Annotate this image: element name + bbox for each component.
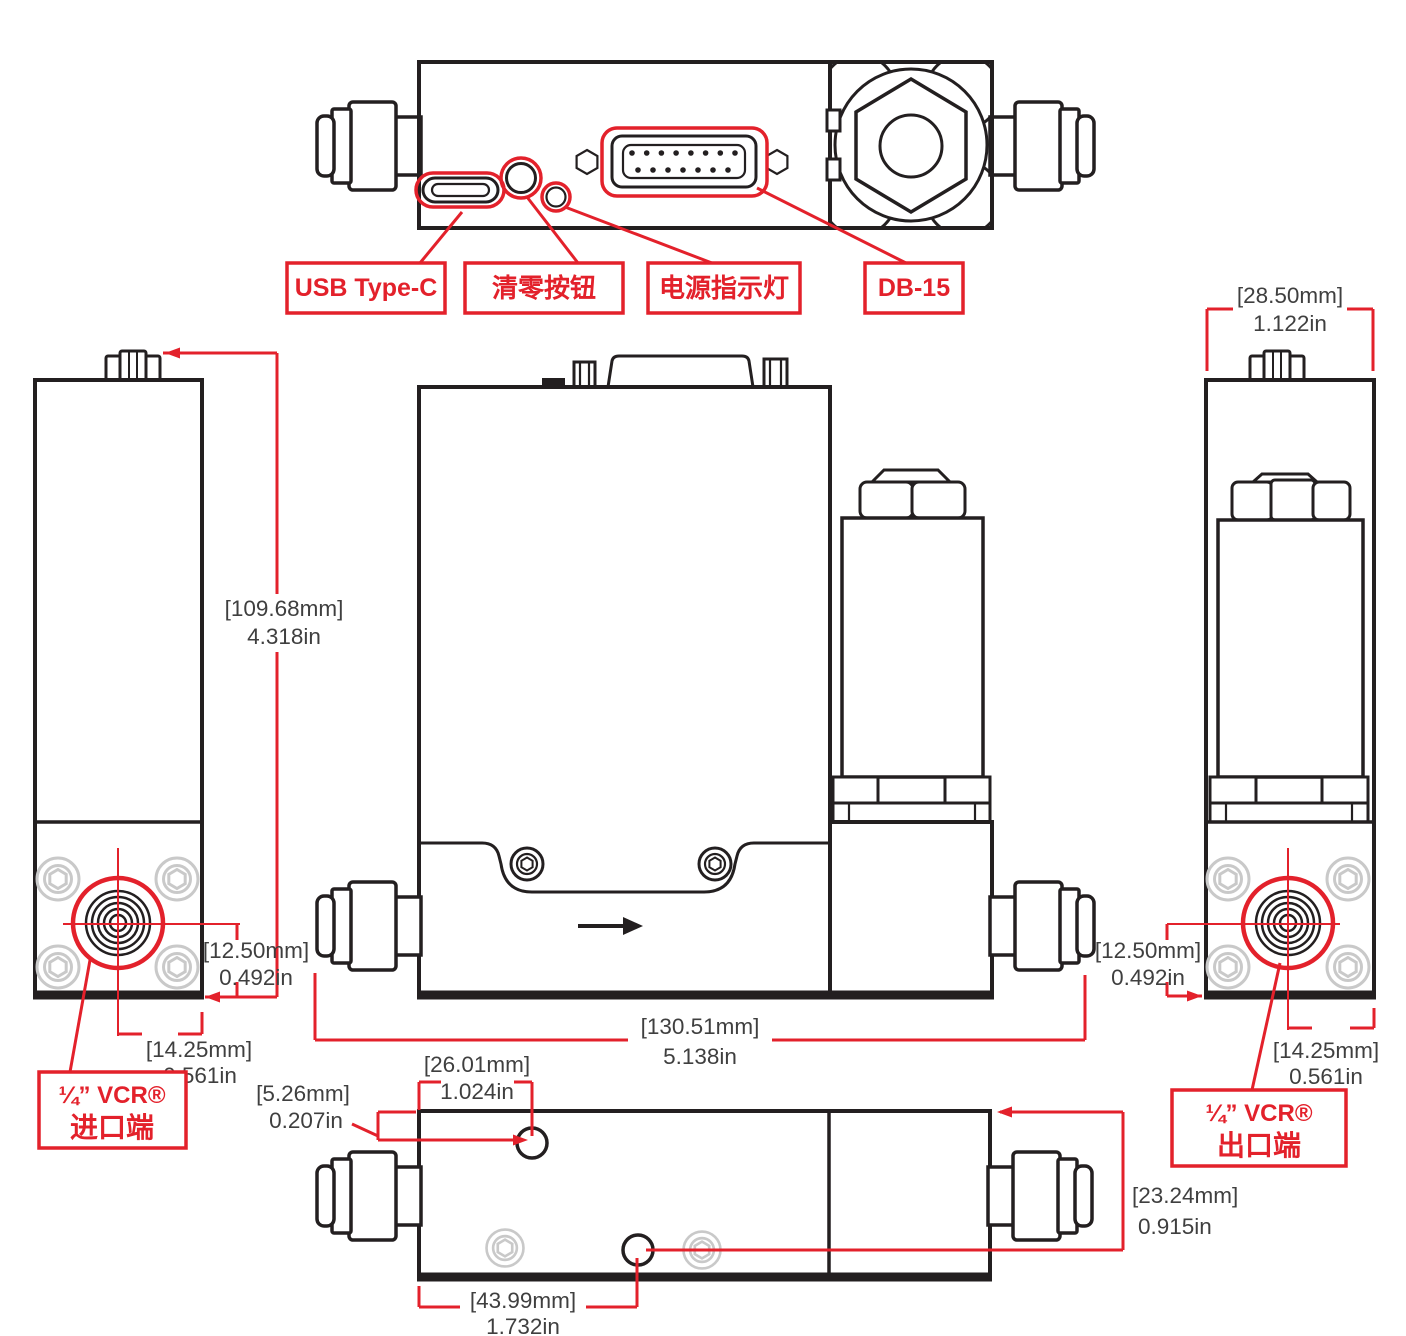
bottom-socket-1	[487, 1230, 524, 1267]
callout-zero-button-label: 清零按钮	[492, 273, 596, 303]
front-valve-body	[842, 518, 983, 777]
db15-pins	[629, 150, 738, 173]
front-view	[317, 356, 1094, 995]
left-bolt-1	[37, 858, 79, 900]
mfc-dimension-diagram: USB Type-C 清零按钮 电源指示灯 DB-15	[0, 0, 1406, 1336]
dim-inlet-height-in: 0.492in	[219, 965, 293, 990]
dim-overall-width-mm: [130.51mm]	[641, 1014, 760, 1039]
front-valve-nut-r	[912, 482, 965, 518]
bottom-outlet-fitting	[988, 1152, 1092, 1240]
front-screw-right	[699, 848, 731, 880]
callout-boxes: USB Type-C 清零按钮 电源指示灯 DB-15	[287, 263, 963, 313]
dim-body-depth-mm: [28.50mm]	[1237, 283, 1343, 308]
top-view	[317, 55, 1094, 235]
dim-hole2-x-in: 1.732in	[486, 1314, 560, 1336]
power-led	[547, 188, 566, 207]
right-valve-nut-r	[1313, 482, 1350, 520]
dim-hole2-y-mm: [23.24mm]	[1132, 1183, 1238, 1208]
db15-connector	[612, 136, 756, 187]
callout-db15-label: DB-15	[878, 274, 950, 302]
front-valve-base	[830, 822, 992, 995]
right-flange-tab-l	[1210, 777, 1256, 803]
right-bolt-1	[1207, 858, 1249, 900]
usb-c-slot	[432, 184, 489, 196]
outlet-callout-subtitle: 出口端	[1217, 1130, 1301, 1161]
zero-button	[507, 164, 536, 193]
dim-hole1-x-in: 1.024in	[440, 1079, 514, 1104]
right-valve-body	[1218, 520, 1363, 777]
inlet-callout-title: ¼” VCR®	[58, 1082, 165, 1109]
dim-hole2-x-mm: [43.99mm]	[470, 1288, 576, 1313]
bottom-inlet-fitting	[317, 1152, 421, 1240]
right-top-bolt	[1250, 351, 1304, 380]
front-db15-top	[608, 356, 753, 387]
top-inlet-fitting	[317, 102, 421, 190]
diagram-canvas: USB Type-C 清零按钮 电源指示灯 DB-15	[0, 0, 1406, 1336]
dim-outlet-height-mm: [12.50mm]	[1095, 938, 1201, 963]
front-flange-tab-r	[945, 777, 990, 803]
bottom-view	[317, 1111, 1092, 1279]
dim-hole1-x-mm: [26.01mm]	[424, 1052, 530, 1077]
front-inlet-fitting	[317, 882, 421, 970]
dim-overall-width-in: 5.138in	[663, 1044, 737, 1069]
valve-tab-top	[827, 110, 840, 131]
front-body	[419, 387, 830, 995]
right-valve-nut-m	[1271, 480, 1315, 520]
front-clip-right	[764, 359, 787, 387]
bottom-body	[419, 1111, 990, 1279]
top-outlet-fitting	[990, 102, 1094, 190]
front-flange-tab-l	[833, 777, 878, 803]
front-base-recess	[419, 843, 830, 892]
dim-inlet-offset-mm: [14.25mm]	[146, 1037, 252, 1062]
dim-hole1-y-mm: [5.26mm]	[256, 1081, 350, 1106]
front-flange-band	[833, 803, 990, 822]
outlet-callout-title: ¼” VCR®	[1205, 1100, 1312, 1127]
flow-arrow-head	[623, 917, 643, 935]
dim-overall-height-in: 4.318in	[247, 624, 321, 649]
left-bolt-3	[37, 946, 79, 988]
right-bolt-3	[1207, 946, 1249, 988]
left-bolt-2	[156, 858, 198, 900]
dim-outlet-offset-in: 0.561in	[1289, 1064, 1363, 1089]
left-top-bolt	[106, 351, 160, 380]
dim-outlet-offset-mm: [14.25mm]	[1273, 1038, 1379, 1063]
front-clip-left	[574, 362, 595, 387]
dim-inlet-height-mm: [12.50mm]	[203, 938, 309, 963]
dim-body-depth-in: 1.122in	[1253, 311, 1327, 336]
usb-c-port	[423, 178, 498, 202]
dim-outlet-height-in: 0.492in	[1111, 965, 1185, 990]
front-valve-cap	[872, 470, 950, 482]
right-flange-tab-r	[1322, 777, 1368, 803]
right-valve-nut-l	[1232, 482, 1273, 520]
front-outlet-fitting	[990, 882, 1094, 970]
db15-shell	[623, 145, 745, 178]
front-screw-left	[511, 848, 543, 880]
db15-screw-left-icon	[577, 150, 598, 174]
dim-hole1-y-in: 0.207in	[269, 1108, 343, 1133]
dim-overall-height-mm: [109.68mm]	[225, 596, 344, 621]
callout-usb-label: USB Type-C	[295, 274, 438, 302]
right-bolt-2	[1327, 858, 1369, 900]
db15-screw-right-icon	[767, 150, 788, 174]
front-valve-nut-l	[860, 482, 913, 518]
valve-tab-bottom	[827, 159, 840, 180]
callout-power-led-label: 电源指示灯	[659, 273, 789, 303]
dim-hole2-y-in: 0.915in	[1138, 1214, 1212, 1239]
inlet-callout-subtitle: 进口端	[70, 1112, 154, 1143]
right-flange-band	[1210, 803, 1368, 822]
right-side-view	[1204, 351, 1376, 996]
right-bolt-4	[1327, 946, 1369, 988]
left-bolt-4	[156, 946, 198, 988]
